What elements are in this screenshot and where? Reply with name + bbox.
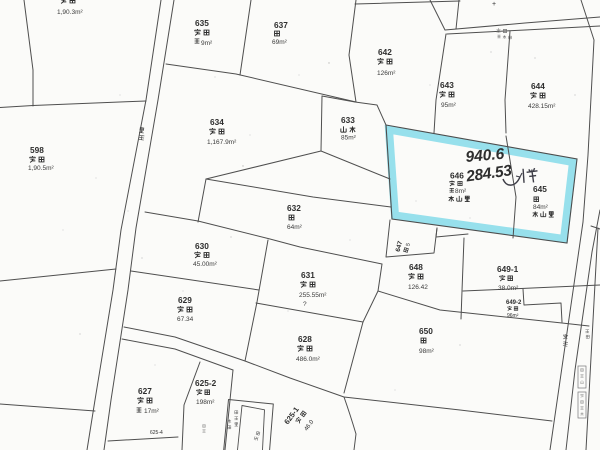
svg-text:255.55m²: 255.55m² [299,292,327,299]
svg-text:631: 631 [301,270,315,280]
svg-text:?: ? [303,301,307,308]
svg-text:84m²: 84m² [533,204,549,211]
svg-text:625-2: 625-2 [195,378,217,388]
svg-text:598: 598 [30,145,44,155]
svg-text:198m²: 198m² [196,399,215,406]
svg-text:45.00m²: 45.00m² [193,261,218,268]
svg-text:1,90.3m²: 1,90.3m² [57,9,83,16]
svg-text:650: 650 [419,326,433,336]
svg-text:633: 633 [341,115,355,125]
svg-text:126m²: 126m² [377,70,396,77]
svg-text:+: + [492,1,496,8]
svg-text:69m²: 69m² [272,39,288,46]
svg-text:67.34: 67.34 [177,316,194,323]
svg-text:648: 648 [409,262,423,272]
svg-text:643: 643 [440,80,454,90]
svg-text:632: 632 [287,203,301,213]
svg-text:645: 645 [533,184,547,194]
svg-text:635: 635 [195,18,209,28]
svg-text:627: 627 [138,386,152,396]
svg-text:96m²: 96m² [507,313,519,319]
svg-text:642: 642 [378,47,392,57]
svg-text:630: 630 [195,241,209,251]
svg-text:64m²: 64m² [287,224,303,231]
svg-text:628: 628 [298,334,312,344]
svg-text:646: 646 [450,171,464,181]
svg-text:38.0m²: 38.0m² [498,285,519,292]
svg-text:644: 644 [531,81,545,91]
svg-text:625-4: 625-4 [150,430,163,436]
svg-text:1,167.9m²: 1,167.9m² [207,139,237,146]
svg-text:98m²: 98m² [419,348,435,355]
svg-text:1,90.5m²: 1,90.5m² [28,165,54,172]
svg-text:8m²: 8m² [455,188,467,195]
svg-text:17m²: 17m² [144,408,160,415]
svg-text:649-2: 649-2 [506,300,522,306]
svg-text:634: 634 [210,117,224,127]
svg-text:126.42: 126.42 [408,284,428,291]
svg-text:85m²: 85m² [341,135,357,142]
svg-text:486.0m²: 486.0m² [296,356,321,363]
svg-text:95m²: 95m² [441,102,457,109]
svg-text:637: 637 [274,20,288,30]
svg-text:9m²: 9m² [201,40,213,47]
svg-text:629: 629 [178,295,192,305]
svg-text:428.15m²: 428.15m² [528,103,556,110]
svg-text:649-1: 649-1 [497,264,519,274]
